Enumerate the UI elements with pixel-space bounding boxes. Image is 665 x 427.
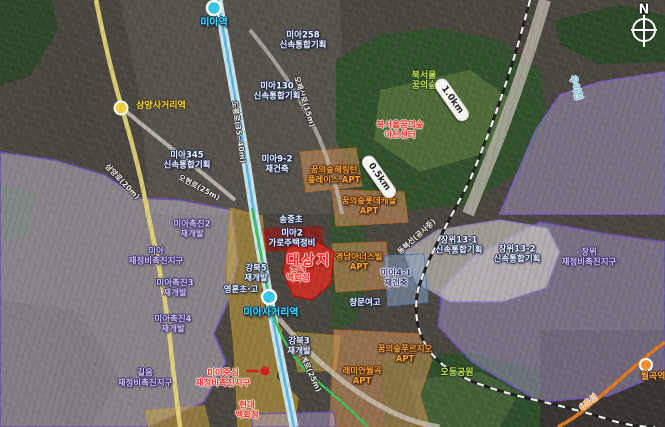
poi-songjung-elem: 송중초 [279,216,302,226]
zone-gangbuk3: 강북3재개발 [287,337,310,356]
zone-mia-center: 미아중심재정비촉진지구 [196,369,251,388]
zone-mia-district: 미아재정비촉진지구 [129,247,184,266]
apt-prugio: 꿈의숲푸르지오APT [378,345,433,364]
zone-mia-chokjin3: 미아촉진3재개발 [156,279,193,298]
apt-raemian-wolgok: 래미안월곡APT [342,367,381,386]
zone-mia345: 미아345신속통합기획 [164,151,211,170]
zone-mia4-1: 미아4-1재건축 [381,269,412,288]
park-dream-forest: 북서울꿈의숲 [412,71,437,91]
badge-0-5km: 0.5km [359,153,399,201]
zone-mia258: 미아258신속통합기획 [280,31,327,50]
poi-hyundai-dept: 현대백화점 [235,401,258,420]
zone-jangwi13-1: 장위13-1신속통합기획 [436,236,483,255]
road-ohyeonro: 오현로(25m) [177,174,221,203]
map-labels: 미아역삼양사거리역미아사거리역월곡역6호선도봉로(35~40m)오패산로(15m… [0,0,665,427]
apt-harrington: 꿈의숲해링턴플레이스 APT [308,166,361,185]
station-samyang-sageori: 삼양사거리역 [136,101,186,111]
zone-jangwi13-2: 장위13-2신속통합기획 [494,245,541,264]
station-wolgok: 월곡역 [641,372,665,382]
apt-lotte-castle: 꿈의숲롯데캐슬APT [342,197,397,216]
road-samyangro: 삼양로(20m) [103,163,141,202]
station-mia: 미아역 [200,17,228,28]
map-canvas: 미아역삼양사거리역미아사거리역월곡역6호선도봉로(35~40m)오패산로(15m… [0,0,665,427]
badge-1-0km: 1.0km [432,76,472,124]
zone-mia-chokjin2: 미아촉진2재개발 [173,220,210,239]
apt-kyungnam: 경남아너스빌APT [336,253,383,272]
zone-mia130: 미아130신속통합기획 [254,82,301,101]
zone-mia9-2: 미아9-2재건축 [262,155,293,174]
stream-uicheon: 우이천 [567,75,584,102]
target-site: 대상지 [287,254,332,270]
line6-label: 6호선 [578,393,600,413]
zone-mia-chokjin4: 미아촉진4재개발 [154,315,191,334]
station-mia-sageori: 미아사거리역 [243,307,298,318]
compass-n-label: N [639,4,650,19]
poi-art-center: 북서울꿈의숲아트센터 [377,121,424,140]
poi-changmun-girls-hs: 창문여고 [349,299,380,309]
zone-jangwi-district: 장위재정비촉진지구 [562,248,617,267]
park-odong: 오동공원 [440,368,473,378]
zone-gireum-district: 길음재정비촉진지구 [118,369,173,388]
line-northeast-constr: 동북선(공사중) [396,218,437,257]
road-dobongro: 도봉로(35~40m) [229,100,246,163]
poi-younghoon-school: 영훈초·고 [224,286,259,296]
zone-gangbuk5: 강북5재개발 [244,264,267,283]
zone-mia2-garo: 미아2가로주택정비 [269,229,316,248]
